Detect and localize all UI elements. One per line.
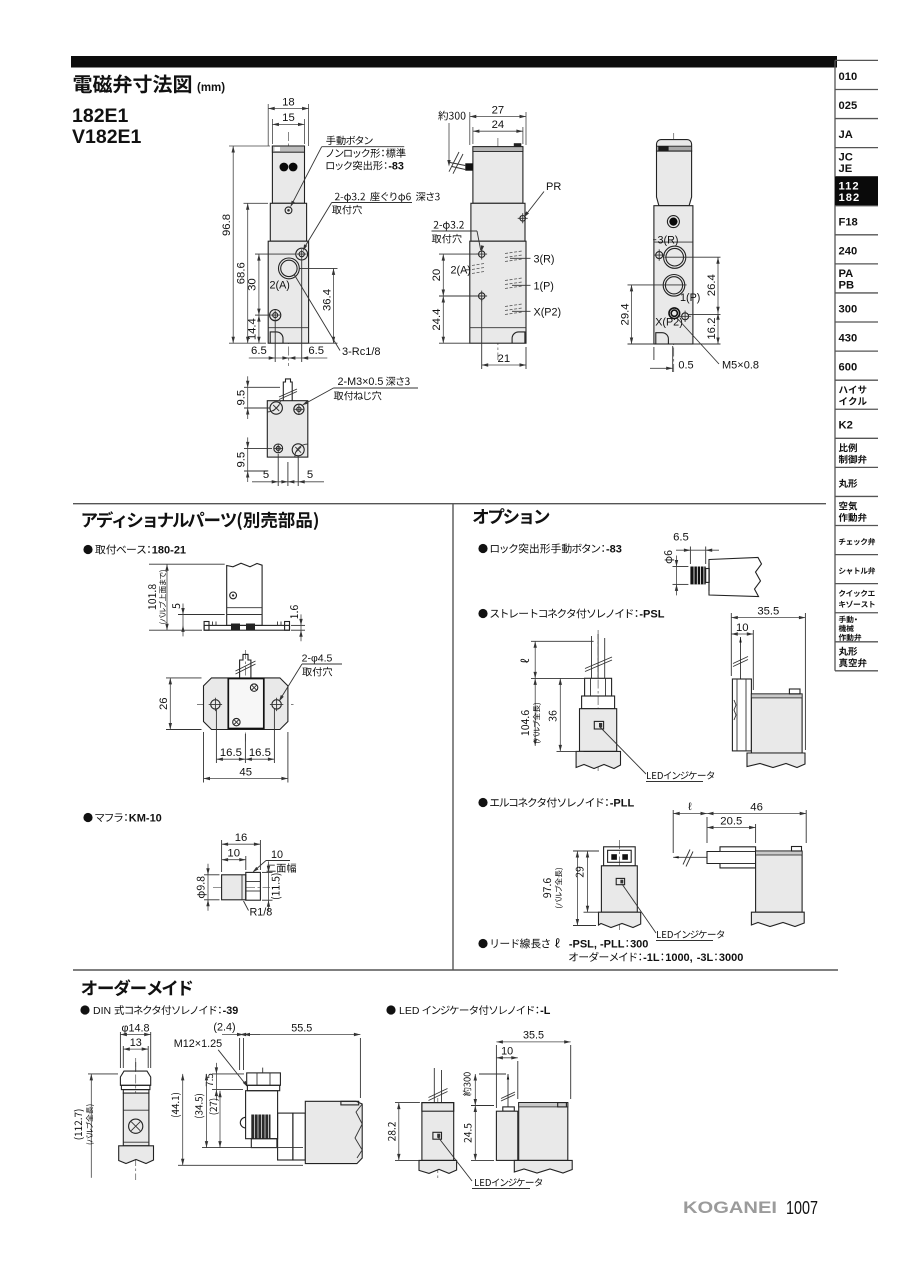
svg-text:φ14.8: φ14.8 <box>122 1022 150 1034</box>
svg-text:16: 16 <box>235 832 248 844</box>
svg-text:KOGANEI: KOGANEI <box>683 1198 777 1217</box>
svg-text:240: 240 <box>839 245 858 257</box>
svg-text:JA: JA <box>839 129 853 141</box>
svg-text:KM-10: KM-10 <box>129 813 162 825</box>
svg-text:26.4: 26.4 <box>706 274 718 296</box>
svg-text:2-M3×0.5: 2-M3×0.5 <box>338 376 384 388</box>
svg-text:-1L: -1L <box>643 952 660 964</box>
svg-text:27: 27 <box>492 104 505 116</box>
svg-text:(mm): (mm) <box>197 82 225 94</box>
svg-text:10: 10 <box>501 1046 513 1058</box>
svg-text:6.5: 6.5 <box>673 532 689 544</box>
svg-text:36.4: 36.4 <box>321 289 333 311</box>
svg-text:M12×1.25: M12×1.25 <box>174 1038 222 1050</box>
svg-text:24.4: 24.4 <box>431 309 443 331</box>
svg-text:X(P2): X(P2) <box>655 317 683 329</box>
svg-text:1007: 1007 <box>786 1197 818 1218</box>
svg-text:46: 46 <box>750 801 763 813</box>
svg-text:45: 45 <box>239 766 252 778</box>
svg-text:13: 13 <box>130 1037 142 1049</box>
svg-text:35.5: 35.5 <box>757 605 779 617</box>
svg-text:26: 26 <box>158 697 170 710</box>
svg-text:V182E1: V182E1 <box>72 126 142 148</box>
svg-text:600: 600 <box>839 362 858 374</box>
svg-text:35.5: 35.5 <box>523 1030 544 1042</box>
svg-text:F18: F18 <box>839 216 858 228</box>
svg-text:16.5: 16.5 <box>249 747 271 759</box>
svg-text:300: 300 <box>839 303 858 315</box>
svg-text:16.2: 16.2 <box>706 318 718 340</box>
svg-text:PR: PR <box>546 181 561 193</box>
svg-text:-83: -83 <box>388 160 404 172</box>
svg-text:3-Rc1/8: 3-Rc1/8 <box>342 346 381 358</box>
svg-text:-PLL: -PLL <box>610 798 635 810</box>
svg-text:JE: JE <box>839 163 853 175</box>
svg-text:30: 30 <box>247 278 259 291</box>
svg-text:LED: LED <box>399 1005 420 1017</box>
svg-text:(2.4): (2.4) <box>213 1021 235 1033</box>
svg-text:10: 10 <box>271 849 283 861</box>
svg-text:6.5: 6.5 <box>308 345 324 357</box>
svg-text:16.5: 16.5 <box>220 747 242 759</box>
svg-text:3000: 3000 <box>719 952 743 964</box>
svg-text:20: 20 <box>431 269 443 282</box>
svg-text:55.5: 55.5 <box>291 1022 312 1034</box>
svg-text:10: 10 <box>736 622 749 634</box>
svg-text:010: 010 <box>839 71 858 83</box>
svg-text:10: 10 <box>227 848 240 860</box>
svg-text:430: 430 <box>839 333 858 345</box>
svg-text:21: 21 <box>498 353 511 365</box>
svg-text:DIN: DIN <box>93 1005 111 1017</box>
svg-text:300: 300 <box>630 939 648 951</box>
svg-text:025: 025 <box>839 100 858 112</box>
svg-text:ℓ: ℓ <box>688 801 692 813</box>
svg-text:3(R): 3(R) <box>534 253 555 265</box>
svg-text:29.4: 29.4 <box>619 303 631 325</box>
svg-text:2-φ4.5: 2-φ4.5 <box>302 653 333 665</box>
svg-text:2(A): 2(A) <box>270 280 290 292</box>
svg-text:180-21: 180-21 <box>152 545 186 557</box>
svg-text:R1/8: R1/8 <box>250 907 273 919</box>
svg-text:-PSL, -PLL: -PSL, -PLL <box>569 939 625 951</box>
svg-text:M5×0.8: M5×0.8 <box>722 360 759 372</box>
svg-text:K2: K2 <box>839 420 853 432</box>
svg-text:9.5: 9.5 <box>236 390 248 406</box>
svg-text:9.5: 9.5 <box>236 452 248 468</box>
svg-text:20.5: 20.5 <box>720 815 742 827</box>
svg-text:96.8: 96.8 <box>221 214 233 236</box>
svg-text:24: 24 <box>492 119 505 131</box>
svg-text:-PSL: -PSL <box>639 609 664 621</box>
svg-text:1(P): 1(P) <box>680 292 700 304</box>
svg-text:6.5: 6.5 <box>251 345 267 357</box>
svg-text:3(R): 3(R) <box>658 235 679 247</box>
svg-text:-L: -L <box>540 1005 551 1017</box>
svg-text:182: 182 <box>839 192 861 204</box>
svg-text:0.5: 0.5 <box>678 360 693 372</box>
svg-text:1000,: 1000, <box>665 952 693 964</box>
svg-text:182E1: 182E1 <box>72 105 129 127</box>
svg-text:-83: -83 <box>606 544 622 556</box>
svg-text:68.6: 68.6 <box>236 262 248 284</box>
svg-text:PA: PA <box>839 268 854 280</box>
svg-text:X(P2): X(P2) <box>534 306 562 318</box>
svg-text:PB: PB <box>839 279 855 291</box>
svg-text:-3L: -3L <box>697 952 714 964</box>
svg-text:5: 5 <box>263 469 269 481</box>
svg-text:15: 15 <box>282 112 295 124</box>
svg-text:JC: JC <box>839 152 853 164</box>
svg-text:18: 18 <box>282 96 295 108</box>
svg-text:-39: -39 <box>223 1005 239 1017</box>
svg-text:14.4: 14.4 <box>247 318 259 340</box>
svg-text:2(A): 2(A) <box>451 265 471 277</box>
svg-text:5: 5 <box>307 469 313 481</box>
svg-text:1(P): 1(P) <box>534 280 554 292</box>
svg-text:112: 112 <box>839 181 860 193</box>
